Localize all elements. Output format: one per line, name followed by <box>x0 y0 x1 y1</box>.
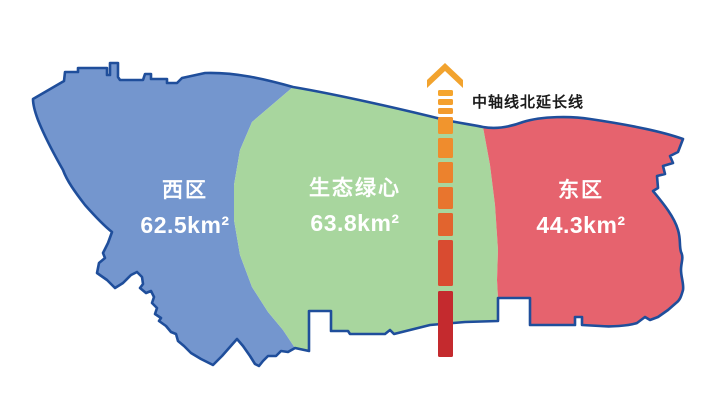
axis-dash <box>438 117 453 134</box>
axis-dash <box>438 240 453 286</box>
north-arrow-icon <box>427 63 463 88</box>
axis-dash <box>438 138 453 158</box>
axis-dash <box>438 108 453 114</box>
axis-dash <box>438 213 453 236</box>
axis-dash <box>438 162 453 183</box>
axis-dash <box>438 291 453 357</box>
central-axis-label: 中轴线北延长线 <box>472 91 584 112</box>
axis-dash <box>438 90 453 96</box>
green-heart-shape <box>234 87 498 351</box>
axis-dash <box>438 187 453 209</box>
axis-dash <box>438 99 453 105</box>
infographic-map: 西区 62.5km² 生态绿心 63.8km² 东区 44.3km² 中轴线北延… <box>0 0 718 407</box>
east-district-shape <box>483 117 683 326</box>
district-map-svg <box>0 0 718 407</box>
